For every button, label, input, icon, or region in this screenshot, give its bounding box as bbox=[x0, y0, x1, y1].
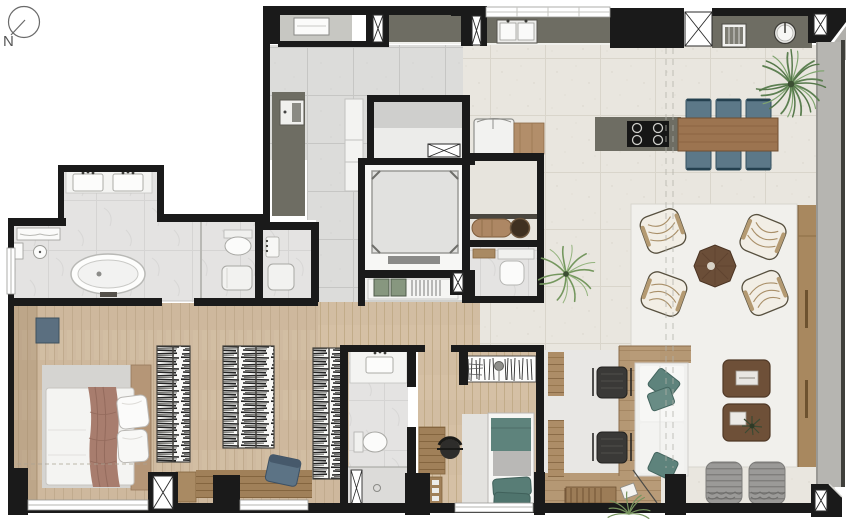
svg-text:N: N bbox=[3, 33, 14, 50]
